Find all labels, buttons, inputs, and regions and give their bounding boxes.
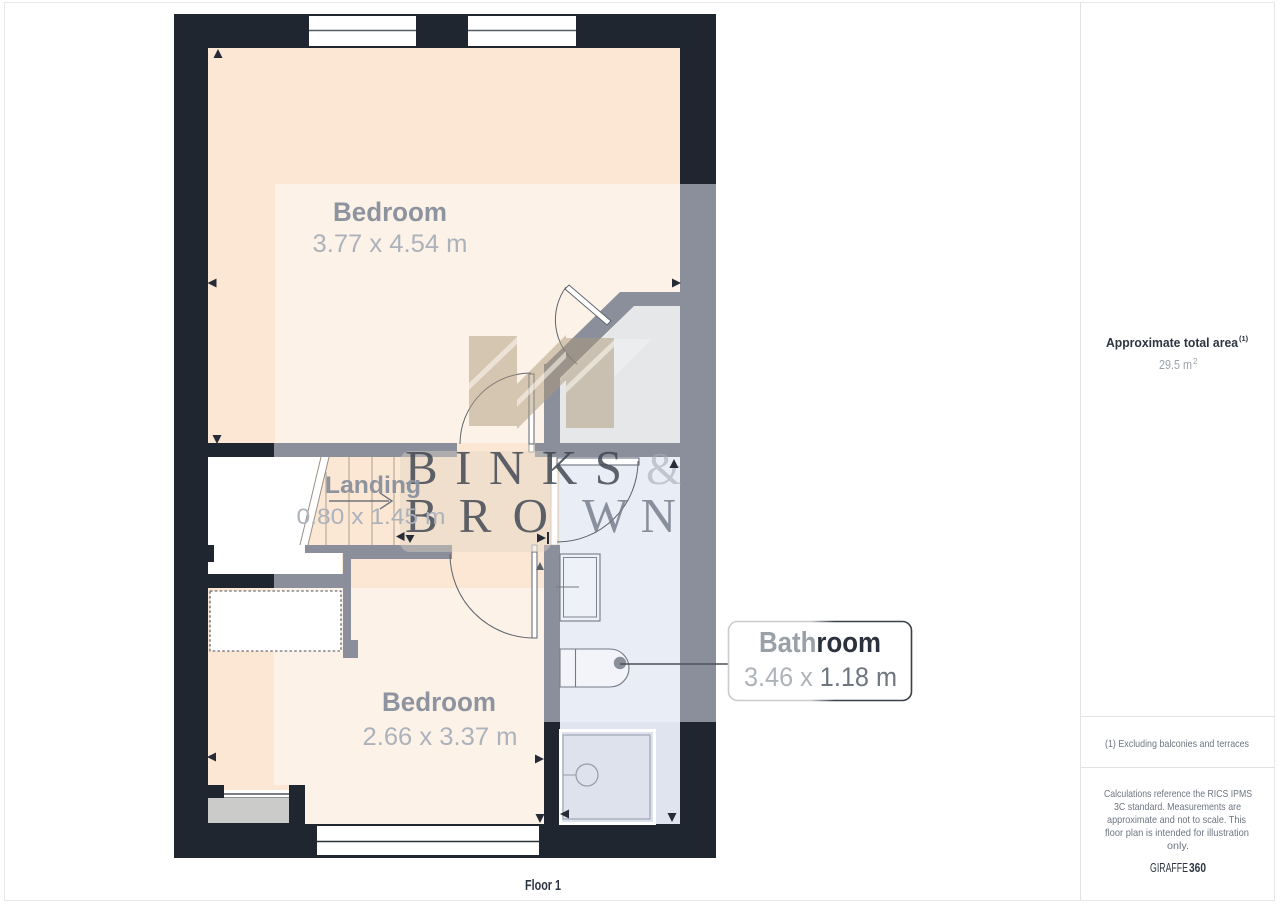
- svg-text:GIRAFFE: GIRAFFE: [1150, 860, 1188, 875]
- svg-text:Bathroom: Bathroom: [759, 627, 881, 659]
- svg-text:29.5 m: 29.5 m: [1159, 358, 1192, 372]
- svg-text:Landing: Landing: [325, 472, 421, 499]
- svg-text:Bedroom: Bedroom: [382, 687, 496, 717]
- svg-text:Calculations reference the RIC: Calculations reference the RICS IPMS: [1104, 788, 1252, 800]
- svg-text:&: &: [646, 443, 682, 494]
- svg-text:0.80 x 1.45 m: 0.80 x 1.45 m: [297, 504, 446, 529]
- svg-text:Floor 1: Floor 1: [525, 877, 561, 894]
- svg-text:(1) Excluding balconies and te: (1) Excluding balconies and terraces: [1105, 738, 1249, 750]
- svg-text:360: 360: [1189, 860, 1206, 875]
- svg-text:approximate and not to scale.: approximate and not to scale. This: [1107, 814, 1246, 826]
- svg-text:(1): (1): [1239, 334, 1249, 343]
- svg-text:2: 2: [1193, 357, 1198, 366]
- svg-text:Approximate total area: Approximate total area: [1106, 336, 1239, 350]
- svg-text:2.66 x 3.37 m: 2.66 x 3.37 m: [363, 723, 518, 751]
- svg-text:only.: only.: [1167, 840, 1189, 852]
- svg-text:floor plan is intended for ill: floor plan is intended for illustration: [1105, 827, 1249, 839]
- svg-text:Bedroom: Bedroom: [333, 197, 447, 227]
- svg-text:3.77 x 4.54 m: 3.77 x 4.54 m: [313, 230, 468, 258]
- svg-text:3C standard. Measurements are: 3C standard. Measurements are: [1114, 801, 1241, 813]
- svg-text:3.46 x 1.18 m: 3.46 x 1.18 m: [744, 662, 897, 692]
